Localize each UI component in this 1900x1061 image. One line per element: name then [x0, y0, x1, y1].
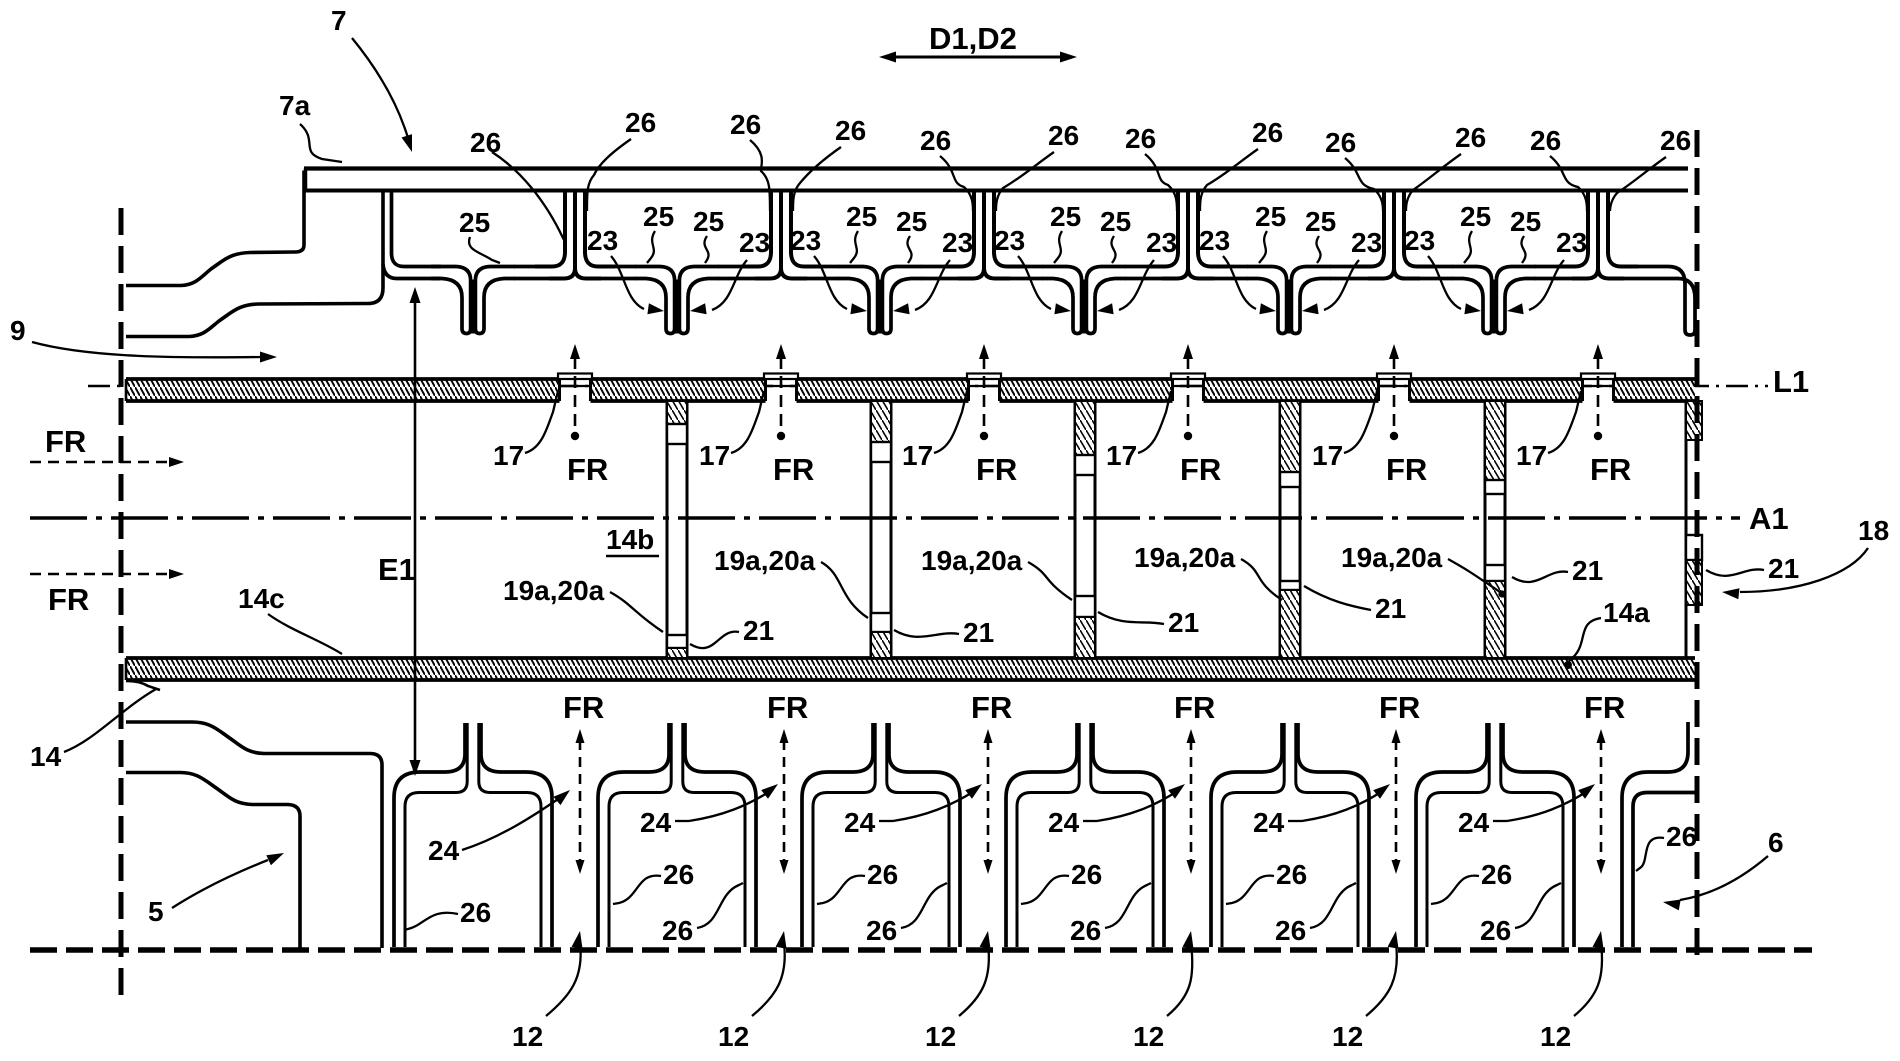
svg-text:26: 26	[470, 127, 501, 158]
svg-text:FR: FR	[1584, 690, 1625, 725]
svg-text:26: 26	[662, 915, 693, 946]
svg-text:FR: FR	[1386, 452, 1427, 487]
svg-text:25: 25	[1305, 206, 1336, 237]
svg-text:FR: FR	[767, 690, 808, 725]
svg-text:FR: FR	[563, 690, 604, 725]
svg-text:FR: FR	[48, 582, 89, 617]
svg-text:L1: L1	[1773, 364, 1809, 399]
svg-text:26: 26	[1071, 859, 1102, 890]
svg-text:26: 26	[1530, 125, 1561, 156]
svg-text:E1: E1	[378, 552, 416, 587]
svg-text:26: 26	[460, 897, 491, 928]
svg-text:5: 5	[148, 896, 164, 927]
svg-text:14: 14	[30, 741, 62, 772]
svg-text:12: 12	[1332, 1021, 1363, 1052]
svg-text:25: 25	[846, 201, 877, 232]
svg-text:12: 12	[925, 1021, 956, 1052]
svg-text:18: 18	[1858, 515, 1889, 546]
svg-text:21: 21	[963, 617, 994, 648]
svg-text:25: 25	[459, 207, 490, 238]
svg-text:A1: A1	[1749, 501, 1789, 536]
svg-text:7a: 7a	[279, 90, 311, 121]
svg-text:25: 25	[1255, 201, 1286, 232]
svg-text:25: 25	[693, 206, 724, 237]
svg-text:FR: FR	[45, 424, 86, 459]
svg-text:FR: FR	[1590, 452, 1631, 487]
svg-text:14a: 14a	[1603, 597, 1650, 628]
svg-text:D1,D2: D1,D2	[929, 21, 1017, 56]
svg-text:26: 26	[663, 859, 694, 890]
svg-text:21: 21	[1768, 553, 1799, 584]
svg-text:24: 24	[1458, 807, 1490, 838]
svg-text:24: 24	[428, 835, 460, 866]
svg-text:26: 26	[625, 107, 656, 138]
svg-text:25: 25	[1100, 206, 1131, 237]
svg-text:26: 26	[835, 115, 866, 146]
svg-text:7: 7	[331, 5, 347, 36]
svg-text:FR: FR	[1174, 690, 1215, 725]
svg-text:23: 23	[790, 225, 821, 256]
svg-text:26: 26	[1070, 915, 1101, 946]
svg-text:23: 23	[994, 225, 1025, 256]
svg-text:17: 17	[699, 440, 730, 471]
svg-text:26: 26	[1252, 117, 1283, 148]
svg-text:26: 26	[866, 915, 897, 946]
svg-text:19a,20a: 19a,20a	[503, 575, 605, 606]
svg-text:26: 26	[920, 125, 951, 156]
svg-text:21: 21	[743, 615, 774, 646]
svg-text:FR: FR	[971, 690, 1012, 725]
svg-text:25: 25	[1050, 201, 1081, 232]
svg-text:17: 17	[1106, 440, 1137, 471]
svg-text:26: 26	[1666, 821, 1697, 852]
svg-text:26: 26	[1048, 120, 1079, 151]
svg-text:23: 23	[1404, 225, 1435, 256]
svg-text:FR: FR	[567, 452, 608, 487]
svg-text:12: 12	[1540, 1021, 1571, 1052]
svg-text:26: 26	[1276, 859, 1307, 890]
svg-text:24: 24	[1048, 807, 1080, 838]
svg-text:25: 25	[643, 201, 674, 232]
svg-text:23: 23	[739, 227, 770, 258]
svg-text:25: 25	[1460, 201, 1491, 232]
svg-text:FR: FR	[1180, 452, 1221, 487]
svg-text:24: 24	[844, 807, 876, 838]
svg-text:12: 12	[1133, 1021, 1164, 1052]
svg-text:21: 21	[1572, 555, 1603, 586]
svg-text:14c: 14c	[238, 583, 285, 614]
svg-text:26: 26	[1455, 122, 1486, 153]
svg-text:23: 23	[1199, 225, 1230, 256]
svg-text:25: 25	[896, 206, 927, 237]
svg-text:26: 26	[867, 859, 898, 890]
svg-text:FR: FR	[1379, 690, 1420, 725]
svg-text:19a,20a: 19a,20a	[921, 545, 1023, 576]
svg-text:26: 26	[1481, 859, 1512, 890]
svg-text:FR: FR	[773, 452, 814, 487]
svg-text:19a,20a: 19a,20a	[714, 545, 816, 576]
svg-text:17: 17	[1312, 440, 1343, 471]
svg-text:9: 9	[10, 315, 26, 346]
svg-text:17: 17	[1516, 440, 1547, 471]
svg-text:26: 26	[1480, 915, 1511, 946]
svg-text:26: 26	[730, 109, 761, 140]
svg-text:14b: 14b	[606, 524, 654, 555]
svg-text:26: 26	[1275, 915, 1306, 946]
svg-text:21: 21	[1168, 607, 1199, 638]
svg-text:12: 12	[718, 1021, 749, 1052]
svg-text:23: 23	[942, 227, 973, 258]
svg-text:21: 21	[1375, 593, 1406, 624]
svg-text:26: 26	[1325, 127, 1356, 158]
svg-text:24: 24	[640, 807, 672, 838]
svg-text:23: 23	[1351, 227, 1382, 258]
svg-text:26: 26	[1125, 123, 1156, 154]
svg-text:26: 26	[1660, 125, 1691, 156]
svg-text:23: 23	[1146, 227, 1177, 258]
svg-text:17: 17	[902, 440, 933, 471]
svg-text:19a,20a: 19a,20a	[1134, 542, 1236, 573]
svg-text:12: 12	[512, 1021, 543, 1052]
svg-text:19a,20a: 19a,20a	[1341, 542, 1443, 573]
svg-text:23: 23	[587, 225, 618, 256]
svg-text:FR: FR	[976, 452, 1017, 487]
svg-text:24: 24	[1253, 807, 1285, 838]
svg-text:23: 23	[1556, 227, 1587, 258]
svg-text:6: 6	[1768, 827, 1784, 858]
svg-text:25: 25	[1510, 206, 1541, 237]
svg-text:17: 17	[493, 440, 524, 471]
